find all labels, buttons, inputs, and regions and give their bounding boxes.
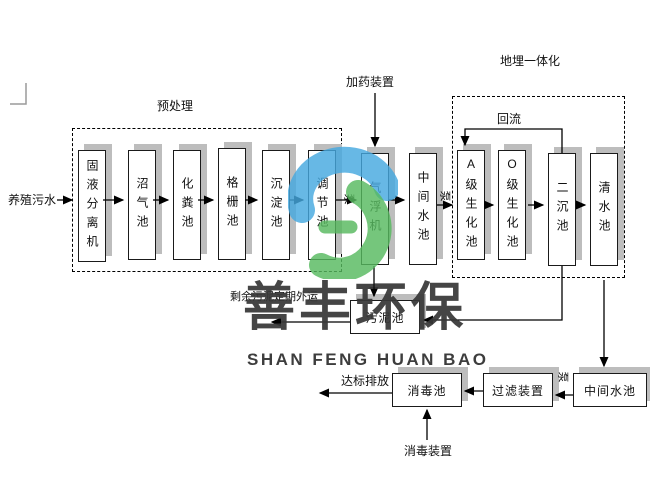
pump-label-3: 泵 — [556, 372, 572, 383]
node-biogas-tank: 沼气池 — [128, 150, 156, 260]
process-flow-diagram: 预处理 加药装置 地埋一体化 回流 养殖污水 剩余污泥定期外运 达标排放 消毒装… — [0, 0, 650, 500]
disinfect-device-label: 消毒装置 — [404, 442, 452, 459]
page-corner-mark — [10, 83, 26, 104]
pump-label-1: 泵 — [342, 194, 358, 205]
node-secondary-sed-tank: 二沉池 — [548, 153, 576, 266]
discharge-label: 达标排放 — [341, 372, 389, 389]
dosing-device-label: 加药装置 — [346, 73, 394, 90]
pump-label-2: 泵 — [438, 191, 454, 202]
buried-integration-label: 地埋一体化 — [500, 52, 560, 69]
node-sludge-tank: 污泥池 — [350, 300, 420, 334]
watermark-english: SHAN FENG HUAN BAO — [247, 350, 488, 370]
influent-label: 养殖污水 — [8, 191, 56, 208]
node-air-flotation: 气浮机 — [361, 153, 389, 265]
sludge-out-label: 剩余污泥定期外运 — [230, 288, 318, 304]
node-regulating-tank: 调节池 — [308, 150, 336, 260]
node-o-bio-tank: O级生化池 — [498, 150, 526, 260]
pretreatment-section-frame — [72, 128, 342, 272]
node-disinfection-tank: 消毒池 — [392, 373, 462, 407]
node-clear-water-tank: 清水池 — [590, 153, 618, 266]
node-intermediate-pool-2: 中间水池 — [573, 373, 647, 407]
node-solid-liquid-separator: 固液分离机 — [78, 150, 106, 262]
node-grille-tank: 格栅池 — [218, 148, 246, 260]
node-intermediate-pool-1: 中间水池 — [409, 153, 437, 265]
node-filter-device: 过滤装置 — [483, 373, 553, 407]
node-sedimentation-tank: 沉淀池 — [262, 150, 290, 260]
node-a-bio-tank: A级生化池 — [457, 150, 485, 260]
node-septic-tank: 化粪池 — [173, 150, 201, 260]
pretreatment-label: 预处理 — [157, 97, 193, 114]
reflux-label: 回流 — [497, 110, 521, 127]
